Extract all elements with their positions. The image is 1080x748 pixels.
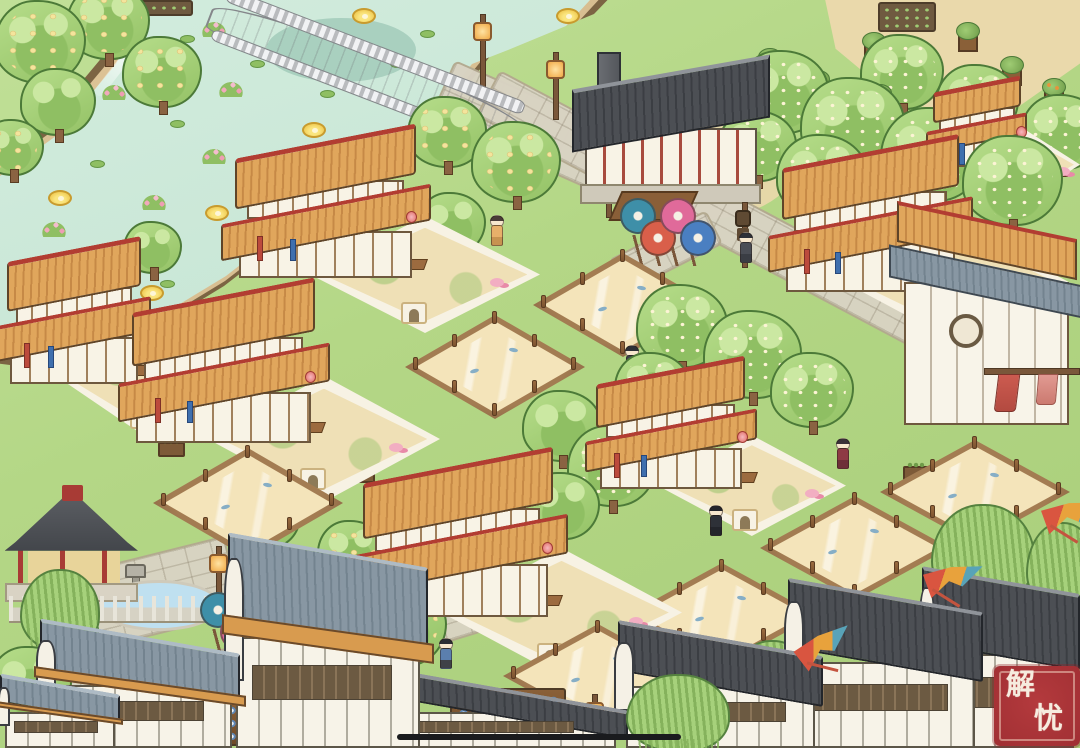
phoenix-kite (1037, 494, 1080, 546)
home-indicator[interactable] (397, 734, 681, 740)
tree (122, 36, 202, 108)
p-post (541, 295, 546, 308)
p-post (810, 515, 815, 528)
p-post (580, 272, 585, 285)
p-post (287, 517, 292, 530)
water-lily (217, 80, 245, 97)
crop-bed (878, 2, 936, 32)
p-post (511, 666, 516, 679)
seal-char-2: 忧 (1034, 704, 1063, 733)
p-post (894, 515, 899, 528)
cloth-drying-rack[interactable] (984, 368, 1080, 428)
p-post (761, 582, 766, 595)
villager[interactable] (708, 505, 722, 535)
p-post (620, 249, 625, 262)
lamp-post (476, 14, 488, 86)
cl-a (993, 374, 1020, 412)
h-ban2 (290, 239, 296, 261)
game-viewport: 解 忧 (0, 0, 1080, 748)
water-lily (140, 193, 168, 210)
p-post (660, 272, 665, 285)
workshop[interactable] (563, 52, 778, 217)
h-lan (305, 371, 316, 383)
lotus-flower (352, 8, 376, 24)
p-post (492, 311, 497, 324)
h-bldg (122, 292, 326, 443)
h-lan (737, 431, 748, 443)
watermark-seal: 解 忧 (994, 666, 1080, 746)
h-gate (732, 509, 758, 531)
cl-b (1035, 374, 1058, 405)
h-ban2 (48, 346, 54, 368)
p-post (492, 403, 497, 416)
p-post (972, 436, 977, 449)
p-post (203, 469, 208, 482)
h-ban1 (155, 398, 161, 423)
villager[interactable] (738, 232, 752, 262)
p-post (245, 445, 250, 458)
h-ban2 (835, 252, 841, 274)
lily-pad (90, 160, 105, 168)
h-ban1 (257, 236, 263, 261)
lamp-post (549, 52, 561, 118)
p-post (553, 643, 558, 656)
lotus-flower (302, 122, 326, 138)
p-post (1014, 459, 1019, 472)
u-c (680, 220, 716, 256)
p-post (571, 357, 576, 370)
lily-pad (170, 120, 185, 128)
p-post (768, 538, 773, 551)
p-post (930, 459, 935, 472)
p-post (532, 334, 537, 347)
p-post (852, 492, 857, 505)
p-post (532, 380, 537, 393)
water-lily (200, 147, 228, 164)
h-ban1 (804, 249, 810, 274)
p-post (894, 561, 899, 574)
d-win (14, 721, 98, 733)
p-post (452, 334, 457, 347)
d-win (811, 684, 948, 712)
h-bldg (225, 138, 427, 278)
h-ban1 (24, 343, 30, 368)
house-grey-roof[interactable] (228, 550, 428, 748)
lily-pad (420, 30, 435, 38)
potted-plant-stand (956, 24, 978, 52)
seal-char-1: 解 (1006, 670, 1035, 699)
lotus-flower (48, 190, 72, 206)
lily-pad (320, 90, 335, 98)
lily-pad (250, 60, 265, 68)
p-post (1056, 482, 1061, 495)
p-post (595, 620, 600, 633)
p-post (888, 482, 893, 495)
h-ban2 (187, 401, 193, 423)
water-lily (40, 220, 68, 237)
house-grey-roof[interactable] (0, 684, 120, 748)
lotus-flower (556, 8, 580, 24)
p-post (719, 559, 724, 572)
phoenix-kite (919, 558, 983, 610)
p-post (329, 493, 334, 506)
v-ridge (62, 485, 83, 501)
p-post (287, 469, 292, 482)
p-post (452, 380, 457, 393)
d-win (252, 665, 392, 701)
